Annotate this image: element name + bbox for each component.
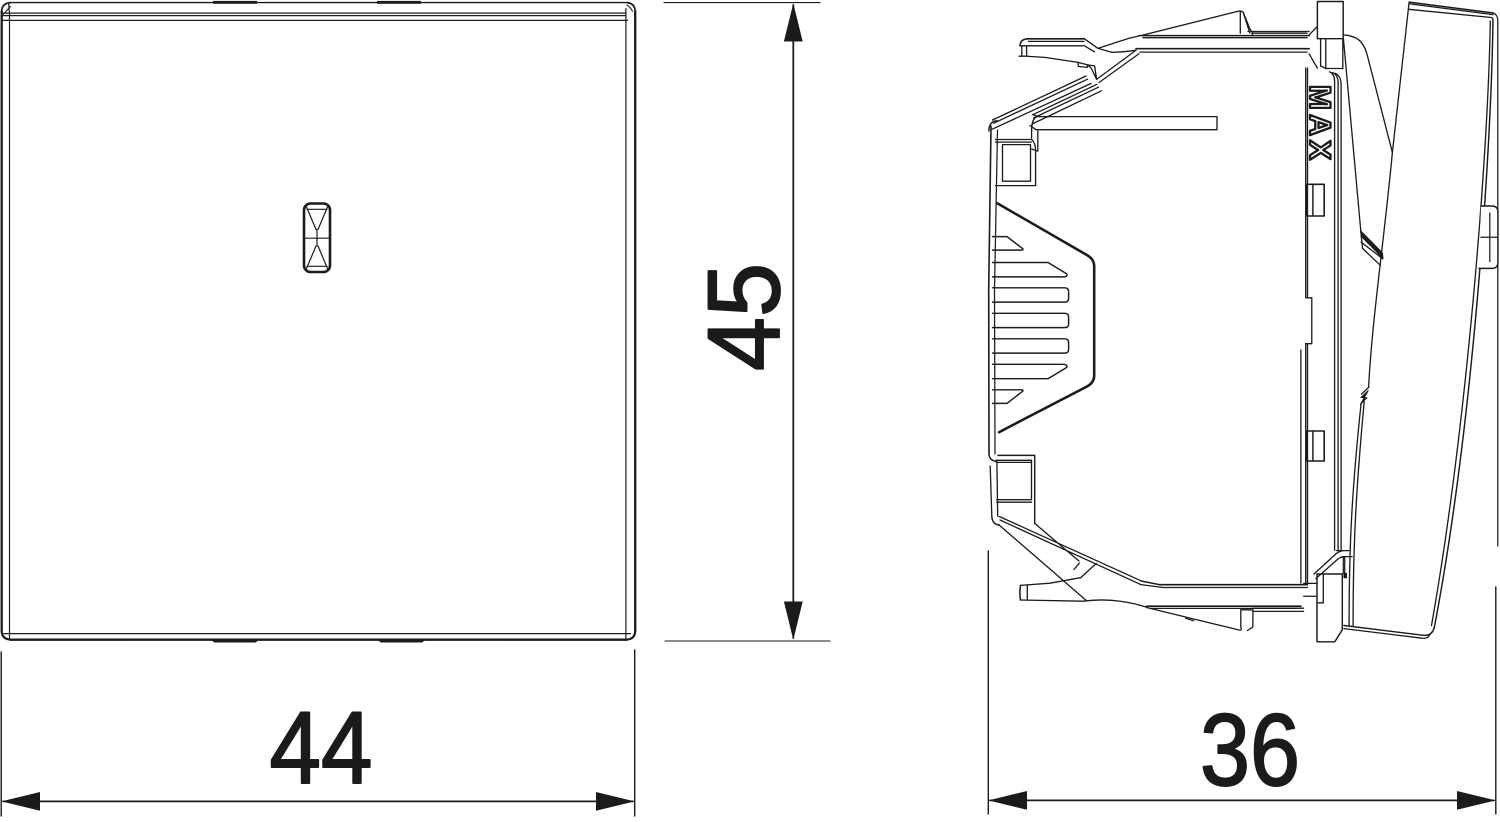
svg-text:X: X	[1303, 140, 1336, 160]
svg-text:M: M	[1303, 85, 1336, 110]
svg-text:A: A	[1303, 114, 1336, 136]
svg-text:45: 45	[687, 263, 801, 371]
svg-text:44: 44	[270, 691, 373, 805]
svg-text:36: 36	[1200, 693, 1300, 807]
